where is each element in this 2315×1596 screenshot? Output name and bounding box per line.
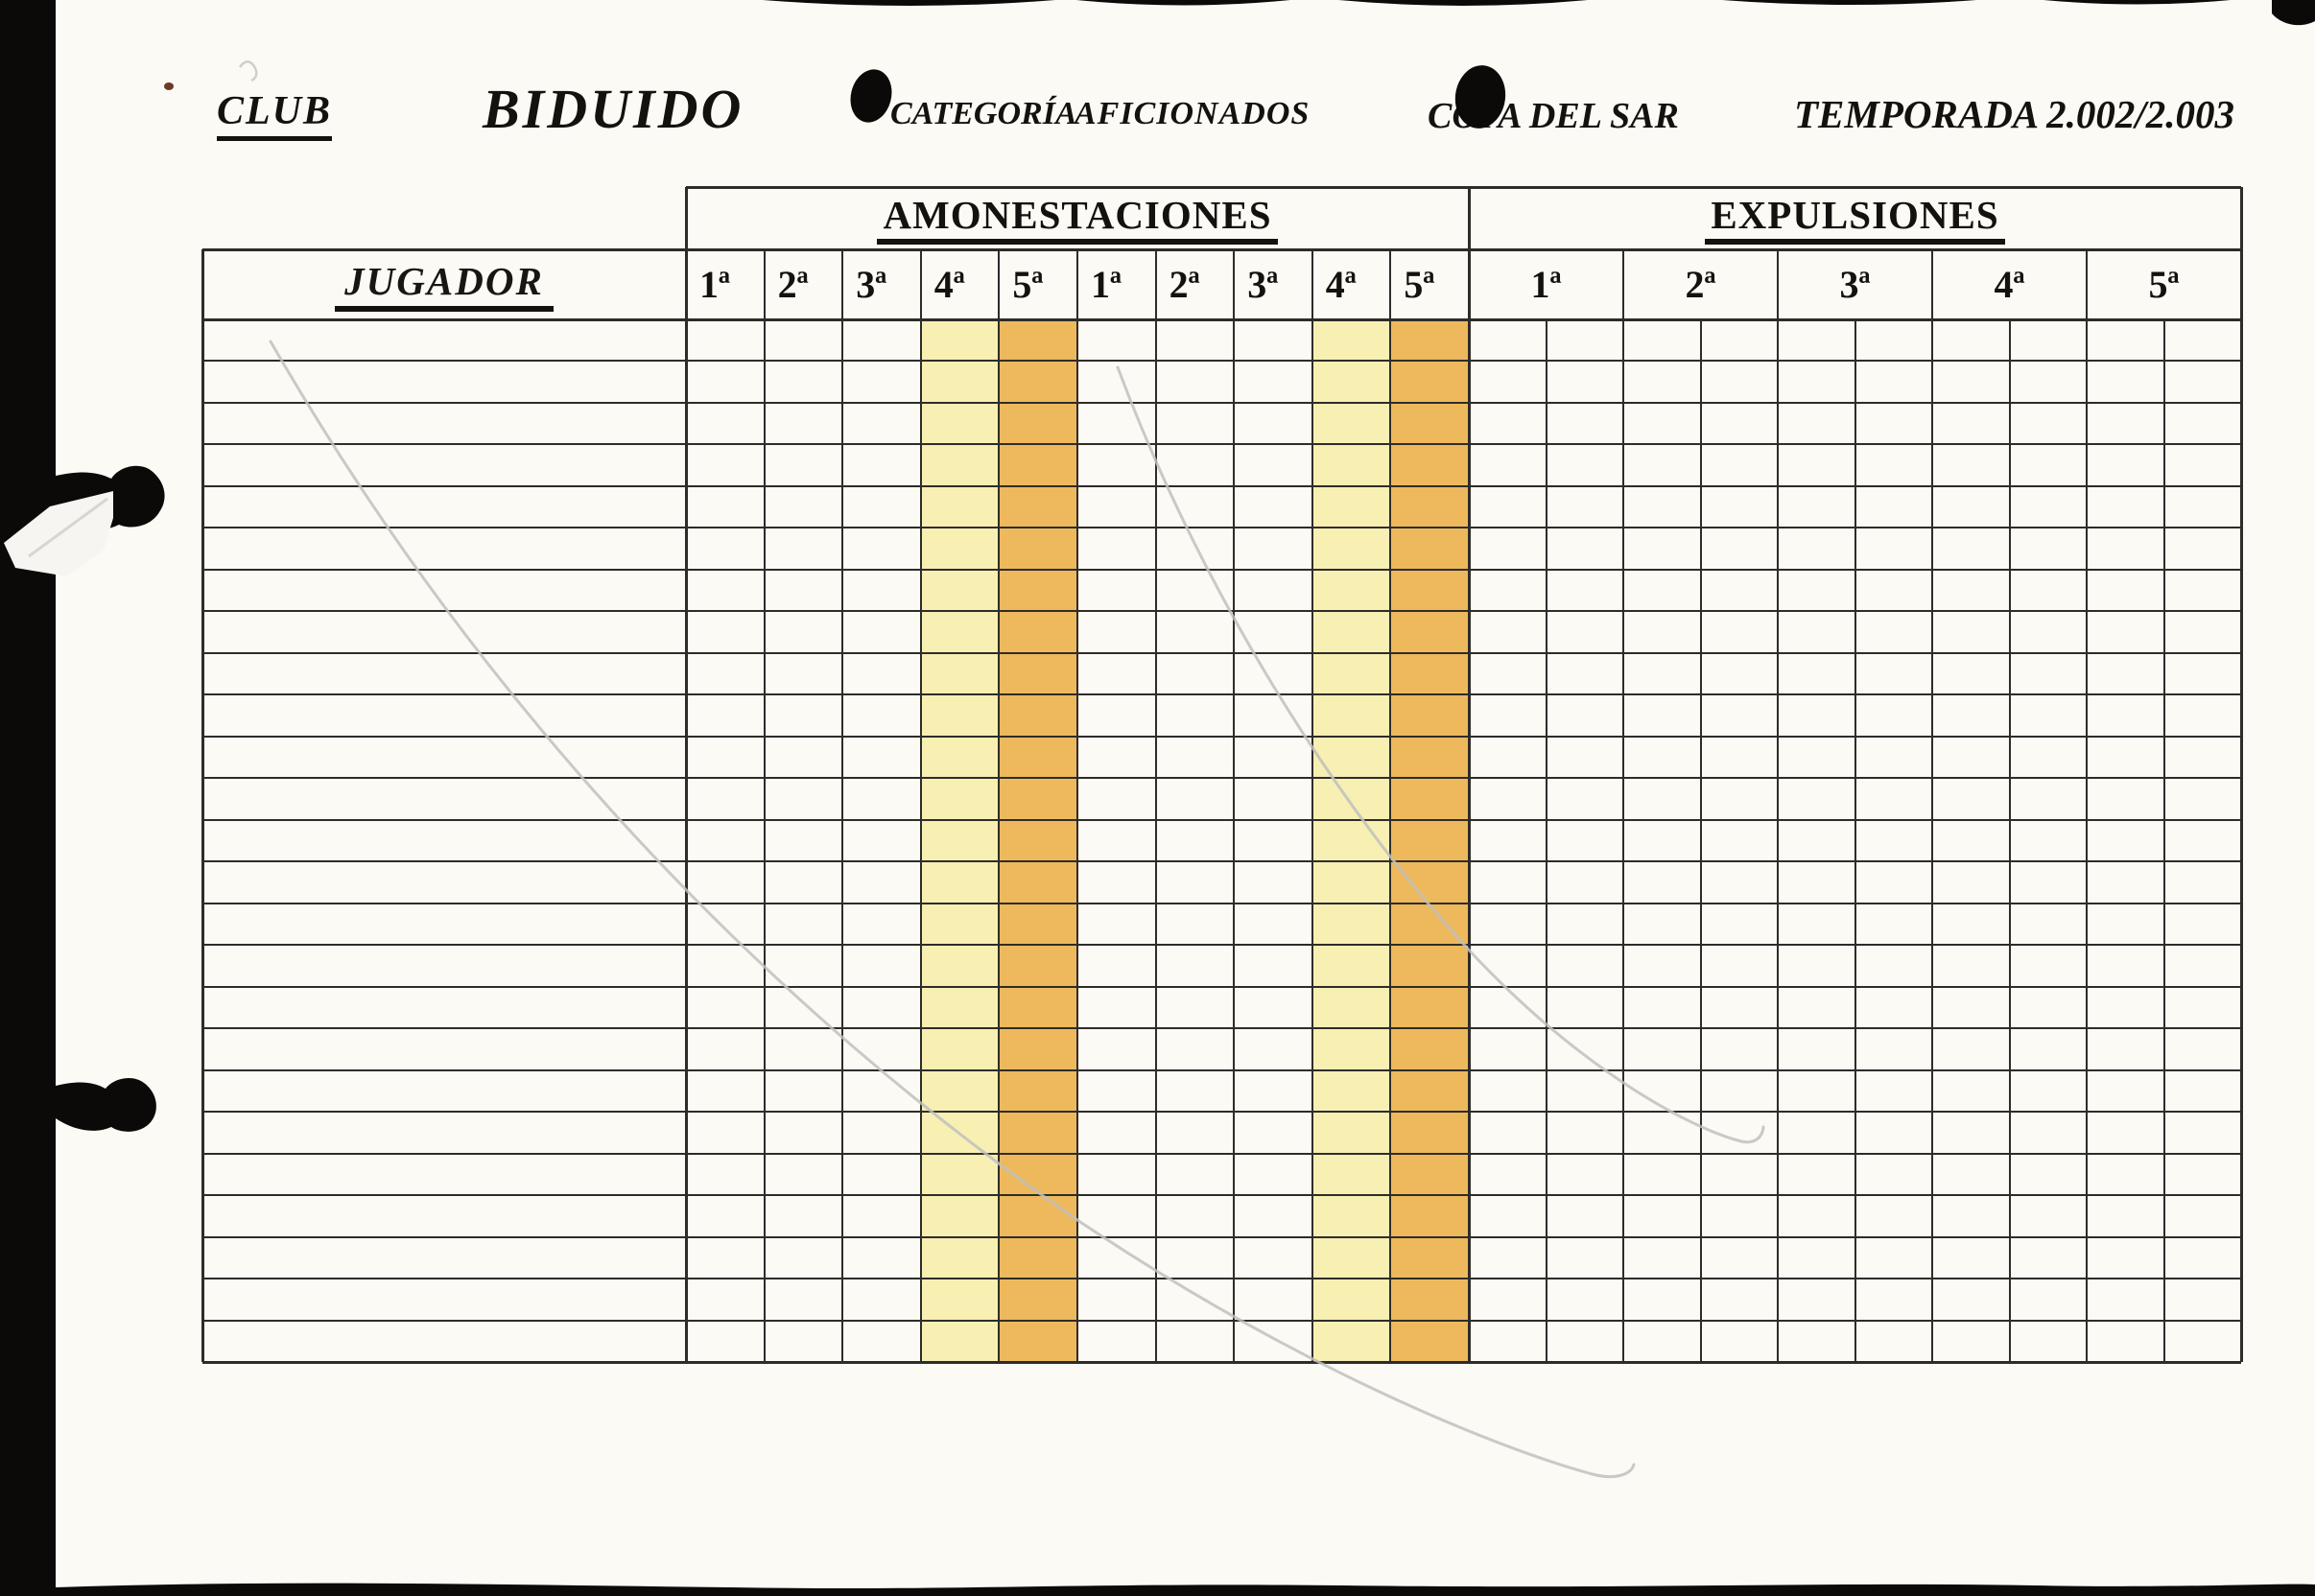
grid-line-horizontal — [202, 485, 2241, 487]
grid-line-horizontal — [202, 819, 2241, 821]
grid-line-vertical — [920, 249, 922, 1362]
amonestaciones-col-label: 4ª — [1312, 249, 1391, 319]
amonestaciones-col-label: 1ª — [1077, 249, 1156, 319]
highlight-column-cream — [1312, 319, 1391, 1362]
grid-line-horizontal — [202, 944, 2241, 946]
jugador-text: JUGADOR — [335, 258, 554, 312]
scanned-form-page: CLUB BIDUIDO CATEGORÍA AFICIONADOS COPA … — [0, 0, 2315, 1596]
amonestaciones-col-label: 5ª — [1390, 249, 1469, 319]
grid-line-horizontal — [202, 569, 2241, 571]
grid-line-horizontal — [202, 736, 2241, 738]
expulsiones-col-label: 1ª — [1469, 249, 1623, 319]
grid-line-vertical — [1546, 319, 1547, 1362]
amonestaciones-col-label: 3ª — [1234, 249, 1312, 319]
grid-line-vertical — [1777, 249, 1779, 1362]
grid-line-vertical — [1076, 249, 1078, 1362]
grid-line-vertical — [764, 249, 766, 1362]
grid-line-vertical — [1389, 249, 1391, 1362]
player-column-header: JUGADOR — [202, 249, 686, 319]
grid-line-vertical — [201, 249, 204, 1362]
grid-line-vertical — [685, 187, 688, 1362]
grid-line-horizontal — [202, 1361, 2241, 1364]
grid-line-vertical — [2086, 249, 2088, 1362]
grid-line-vertical — [2009, 319, 2011, 1362]
grid-line-horizontal — [202, 443, 2241, 445]
grid-line-vertical — [2163, 319, 2165, 1362]
grid-line-horizontal — [202, 1278, 2241, 1279]
section-title-amonestaciones: AMONESTACIONES — [686, 187, 1469, 249]
grid-line-horizontal — [202, 1069, 2241, 1071]
grid-line-horizontal — [202, 903, 2241, 904]
grid-line-horizontal — [202, 693, 2241, 695]
grid-line-horizontal — [202, 860, 2241, 862]
grid-line-horizontal — [202, 1111, 2241, 1113]
grid-line-vertical — [1931, 249, 1933, 1362]
amonestaciones-col-label: 5ª — [999, 249, 1077, 319]
grid-line-vertical — [1700, 319, 1702, 1362]
grid-line-vertical — [1155, 249, 1157, 1362]
grid-line-horizontal — [202, 1194, 2241, 1196]
grid-line-horizontal — [202, 1236, 2241, 1238]
grid-line-horizontal — [202, 652, 2241, 654]
expulsiones-text: EXPULSIONES — [1705, 192, 2004, 245]
grid-line-vertical — [1622, 249, 1624, 1362]
grid-line-horizontal — [202, 777, 2241, 779]
expulsiones-col-label: 4ª — [1932, 249, 2087, 319]
grid-line-horizontal — [686, 186, 2241, 189]
amonestaciones-col-label: 1ª — [686, 249, 765, 319]
grid-line-vertical — [1311, 249, 1313, 1362]
amonestaciones-col-label: 2ª — [765, 249, 843, 319]
grid-line-horizontal — [202, 1153, 2241, 1155]
amonestaciones-col-label: 2ª — [1156, 249, 1235, 319]
grid-line-horizontal — [202, 527, 2241, 528]
expulsiones-col-label: 2ª — [1623, 249, 1778, 319]
amonestaciones-col-label: 3ª — [842, 249, 921, 319]
highlight-column-orange — [999, 319, 1077, 1362]
grid-line-horizontal — [202, 402, 2241, 404]
expulsiones-col-label: 3ª — [1778, 249, 1932, 319]
grid-line-horizontal — [202, 1320, 2241, 1322]
grid-line-horizontal — [202, 986, 2241, 988]
grid-line-vertical — [998, 249, 1000, 1362]
section-title-expulsiones: EXPULSIONES — [1469, 187, 2241, 249]
grid-line-horizontal — [202, 360, 2241, 362]
grid-line-horizontal — [202, 610, 2241, 612]
grid-line-vertical — [2240, 187, 2243, 1362]
amonestaciones-text: AMONESTACIONES — [877, 192, 1277, 245]
grid-line-vertical — [841, 249, 843, 1362]
grid-line-horizontal — [202, 1027, 2241, 1029]
grid-line-vertical — [1468, 187, 1471, 1362]
grid-line-vertical — [1854, 319, 1856, 1362]
grid-line-vertical — [1233, 249, 1235, 1362]
highlight-column-cream — [921, 319, 1000, 1362]
record-table: AMONESTACIONES EXPULSIONES JUGADOR 1ª2ª3… — [0, 0, 2315, 1596]
expulsiones-col-label: 5ª — [2087, 249, 2241, 319]
amonestaciones-col-label: 4ª — [921, 249, 1000, 319]
highlight-column-orange — [1390, 319, 1469, 1362]
